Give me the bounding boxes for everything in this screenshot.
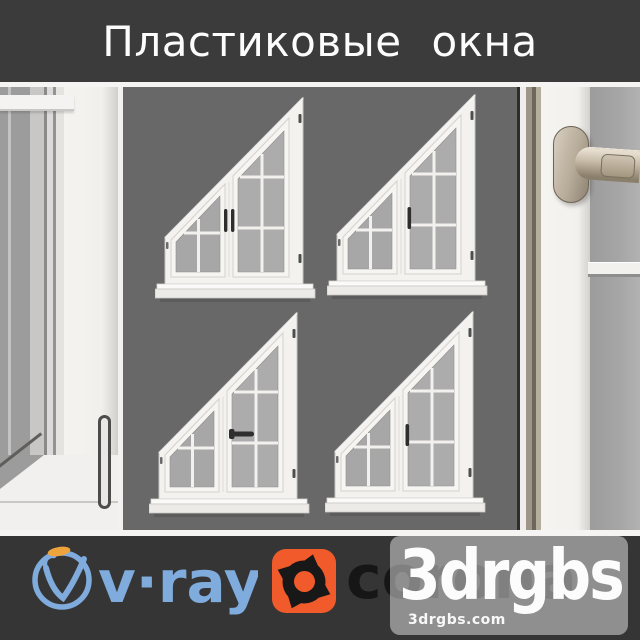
vray-logo: v·ray	[28, 544, 258, 620]
frame-stripe	[30, 87, 44, 455]
window-slot-bottom-right	[325, 304, 489, 520]
hinge	[293, 329, 296, 338]
hinge	[299, 114, 302, 123]
window-sill-front	[155, 289, 315, 298]
window-slot-top-right	[327, 87, 491, 303]
window-sill-top	[329, 281, 485, 286]
door-closeup-right	[517, 87, 640, 530]
watermark-panel: 3drgbs 3drgbs.com	[390, 536, 628, 635]
watermark-brand: 3drgbs	[399, 541, 623, 611]
hinge	[336, 456, 339, 463]
panel-gap-line	[118, 87, 123, 530]
sill-shadow	[154, 513, 304, 517]
window-handle	[406, 424, 410, 446]
hinge	[471, 111, 474, 120]
frame-top-rail	[0, 95, 74, 111]
window-sill-front	[149, 504, 309, 513]
closeup-glass-pane	[0, 87, 30, 455]
vray-icon	[35, 545, 89, 607]
door-muntin-bar	[588, 262, 640, 277]
window-sill-front	[327, 286, 487, 295]
hinge	[293, 469, 296, 478]
vray-wordmark: v·ray	[98, 548, 258, 616]
glass-reflection-line	[8, 87, 11, 455]
trapezoid-window-top-left	[155, 90, 319, 306]
window-slot-top-left	[155, 90, 319, 306]
product-image: Пластиковые окна	[0, 0, 640, 640]
hinge	[471, 251, 474, 260]
sill-shadow	[160, 298, 310, 302]
door-handle	[574, 146, 640, 183]
corona-icon	[272, 549, 336, 613]
frame-stripe	[56, 87, 64, 455]
title-bar: Пластиковые окна	[0, 0, 640, 82]
sill-shadow	[330, 512, 480, 516]
window-closeup-left	[0, 87, 118, 530]
door-handle-grip	[600, 154, 636, 179]
window-slot-bottom-left	[149, 305, 313, 521]
trapezoid-window-bottom-left	[149, 305, 313, 521]
window-sill-top	[151, 499, 307, 504]
window-sill-top	[157, 284, 313, 289]
window-handle	[408, 207, 412, 229]
trapezoid-window-top-right	[327, 87, 491, 303]
hinge	[338, 239, 341, 246]
hinge	[469, 328, 472, 337]
hinge	[469, 468, 472, 477]
watermark-url: 3drgbs.com	[408, 612, 506, 628]
footer-bar: v·ray corona 3drgbs 3drgbs.com	[0, 536, 640, 640]
window-handle-closeup	[98, 415, 111, 509]
sill-shadow	[332, 295, 482, 299]
window-sill-front	[325, 503, 485, 512]
trapezoid-window-bottom-right	[325, 304, 489, 520]
hinge	[160, 457, 163, 464]
hinge	[166, 242, 169, 249]
page-title: Пластиковые окна	[102, 17, 537, 66]
window-sill-top	[327, 498, 483, 503]
hinge	[299, 254, 302, 263]
